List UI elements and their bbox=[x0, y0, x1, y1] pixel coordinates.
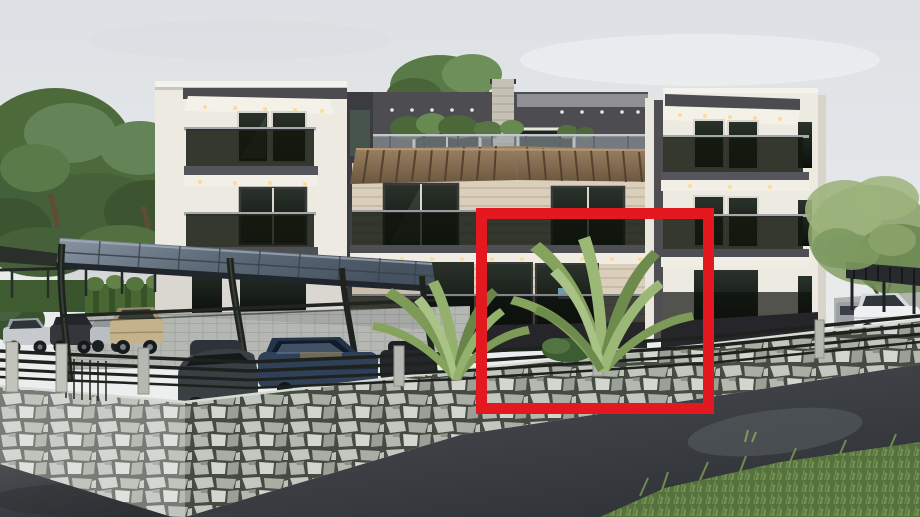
bush bbox=[542, 338, 570, 354]
pergola bbox=[350, 146, 518, 184]
cloud bbox=[520, 34, 880, 86]
balcony-slab bbox=[184, 166, 318, 175]
balcony-glass-railing bbox=[186, 129, 314, 167]
architectural-render bbox=[0, 0, 920, 517]
cloud bbox=[90, 20, 390, 60]
render-canvas bbox=[0, 0, 920, 517]
balcony-glass-railing bbox=[663, 137, 803, 173]
balcony-slab bbox=[661, 172, 809, 180]
roof-fascia bbox=[517, 94, 648, 107]
balcony-slab bbox=[661, 249, 809, 257]
balcony-glass-railing bbox=[663, 216, 803, 250]
balcony-slab bbox=[350, 245, 647, 253]
balcony-glass-railing bbox=[186, 214, 314, 247]
